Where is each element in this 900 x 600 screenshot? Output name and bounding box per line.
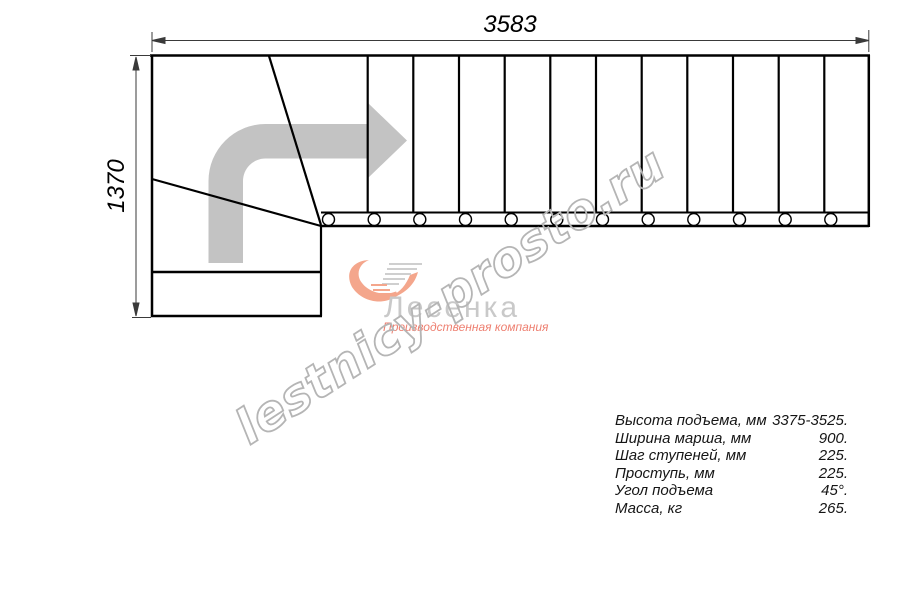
height-dimension-label: 1370 [103, 159, 131, 212]
spec-label: Шаг ступеней, мм [615, 447, 746, 465]
spec-value: 225. [819, 465, 848, 483]
spec-row-width: Ширина марша, мм 900. [615, 430, 848, 448]
spec-table: Высота подъема, мм 3375-3525. Ширина мар… [615, 412, 848, 518]
spec-row-going: Проступь, мм 225. [615, 465, 848, 483]
spec-row-angle: Угол подъема 45°. [615, 482, 848, 500]
width-dimension-label: 3583 [455, 11, 565, 39]
spec-label: Масса, кг [615, 500, 682, 518]
spec-value: 265. [819, 500, 848, 518]
spec-value: 225. [819, 447, 848, 465]
stair-outline [150, 55, 870, 317]
spec-label: Высота подъема, мм [615, 412, 767, 430]
spec-label: Проступь, мм [615, 465, 715, 483]
spec-row-mass: Масса, кг 265. [615, 500, 848, 518]
spec-label: Ширина марша, мм [615, 430, 751, 448]
spec-row-height: Высота подъема, мм 3375-3525. [615, 412, 848, 430]
logo-tagline-text: Производственная компания [383, 320, 548, 334]
baluster-holes [323, 214, 837, 226]
spec-value: 3375-3525. [772, 412, 848, 430]
stair-drawing-page: 3583 1370 Лесенка Производственная компа… [0, 0, 900, 600]
spec-row-step: Шаг ступеней, мм 225. [615, 447, 848, 465]
tread-lines [368, 56, 825, 213]
spec-value: 900. [819, 430, 848, 448]
spec-value: 45°. [821, 482, 848, 500]
spec-label: Угол подъема [615, 482, 713, 500]
